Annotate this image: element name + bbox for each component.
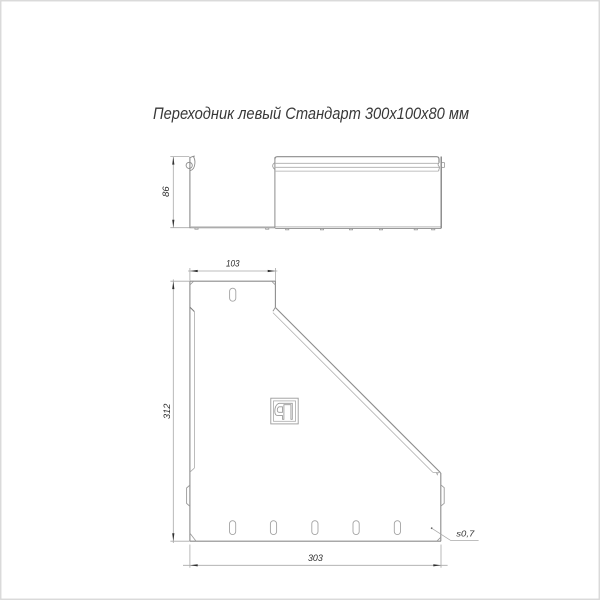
svg-text:103: 103 [226, 258, 240, 268]
svg-text:86: 86 [161, 186, 171, 197]
svg-text:s0,7: s0,7 [456, 529, 474, 539]
svg-text:Переходник левый Стандарт 300х: Переходник левый Стандарт 300х100х80 мм [153, 105, 469, 123]
svg-text:312: 312 [162, 404, 172, 419]
svg-text:303: 303 [308, 553, 323, 563]
